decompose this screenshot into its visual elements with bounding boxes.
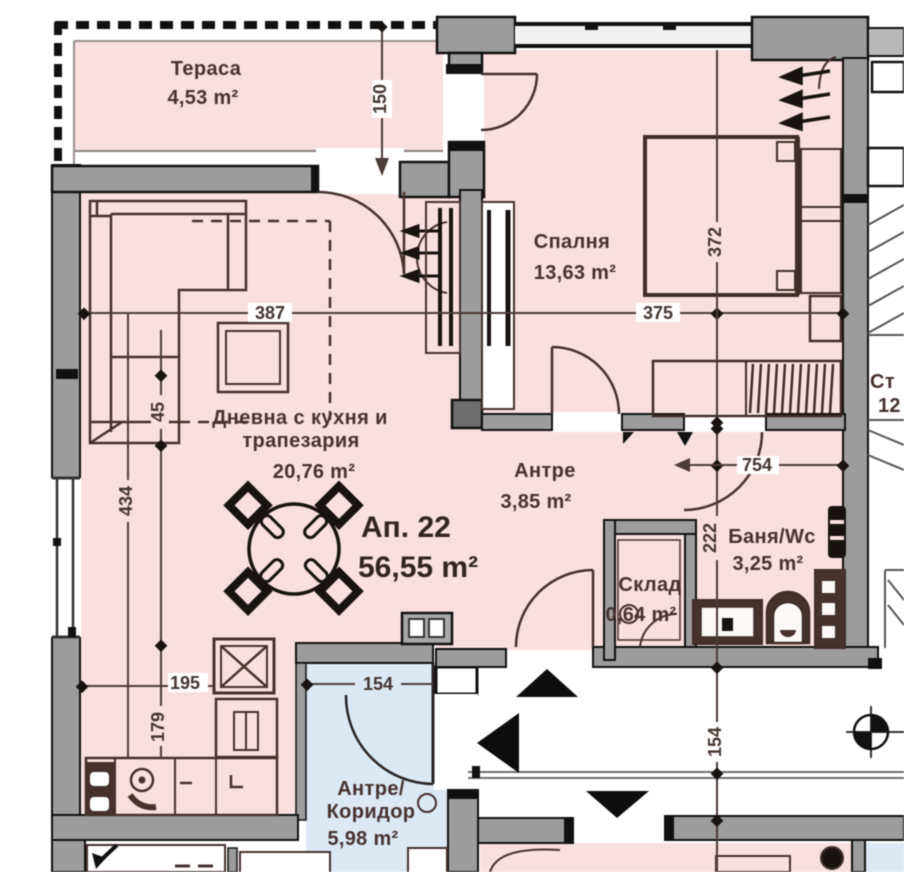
svg-text:Тераса: Тераса xyxy=(171,58,242,80)
svg-text:Спалня: Спалня xyxy=(534,231,611,253)
svg-text:Коридор: Коридор xyxy=(327,801,416,823)
svg-text:56,55 m²: 56,55 m² xyxy=(358,551,478,584)
svg-text:150: 150 xyxy=(370,84,390,114)
svg-text:45: 45 xyxy=(148,402,168,422)
svg-text:20,76 m²: 20,76 m² xyxy=(273,461,355,483)
svg-text:5,98 m²: 5,98 m² xyxy=(327,828,398,850)
svg-text:434: 434 xyxy=(116,486,136,516)
svg-text:195: 195 xyxy=(170,673,200,693)
svg-text:Дневна с кухня и: Дневна с кухня и xyxy=(212,407,388,429)
svg-text:Ап. 22: Ап. 22 xyxy=(361,511,451,544)
svg-text:Ст: Ст xyxy=(870,371,895,393)
svg-text:154: 154 xyxy=(363,674,393,694)
svg-text:3,85 m²: 3,85 m² xyxy=(500,491,571,513)
svg-text:3,25 m²: 3,25 m² xyxy=(732,553,803,575)
svg-text:13,63 m²: 13,63 m² xyxy=(534,262,616,284)
svg-text:12: 12 xyxy=(878,395,901,417)
svg-text:375: 375 xyxy=(643,303,673,323)
svg-text:222: 222 xyxy=(700,523,720,553)
svg-text:Антре: Антре xyxy=(514,460,576,482)
svg-text:трапезария: трапезария xyxy=(242,430,359,452)
svg-text:387: 387 xyxy=(255,303,285,323)
svg-text:179: 179 xyxy=(148,712,168,742)
svg-text:4,53 m²: 4,53 m² xyxy=(167,87,238,109)
svg-text:154: 154 xyxy=(705,727,725,757)
svg-text:Баня/Wc: Баня/Wc xyxy=(728,526,816,548)
svg-text:Склад: Склад xyxy=(618,574,681,596)
svg-text:Антре/: Антре/ xyxy=(337,778,405,800)
svg-text:754: 754 xyxy=(742,455,772,475)
svg-text:372: 372 xyxy=(705,227,725,257)
svg-text:0,64 m²: 0,64 m² xyxy=(605,604,676,626)
